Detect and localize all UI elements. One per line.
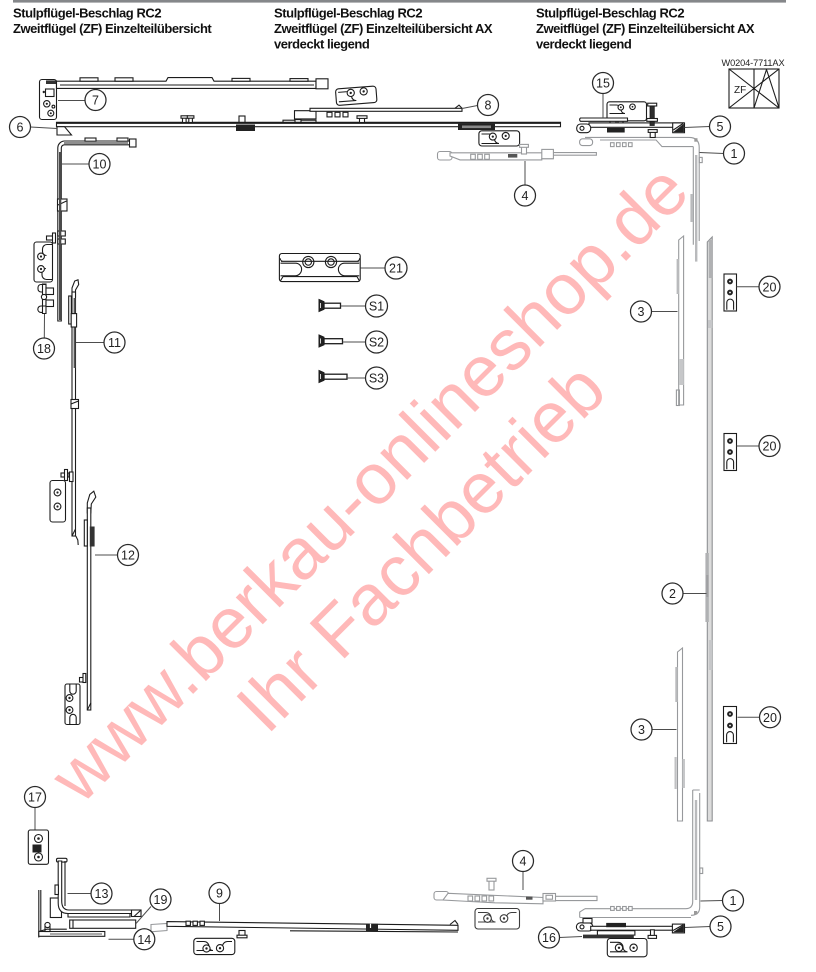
svg-text:Stulpflügel-Beschlag RC2: Stulpflügel-Beschlag RC2: [13, 6, 161, 21]
svg-text:Stulpflügel-Beschlag RC2: Stulpflügel-Beschlag RC2: [536, 6, 684, 21]
svg-text:20: 20: [763, 280, 777, 294]
svg-text:Zweitflügel (ZF) Einzelteilübe: Zweitflügel (ZF) Einzelteilübersicht: [13, 21, 212, 36]
svg-text:11: 11: [108, 336, 121, 350]
svg-text:12: 12: [121, 549, 135, 563]
svg-text:5: 5: [717, 120, 724, 134]
svg-text:20: 20: [763, 711, 777, 725]
svg-text:S2: S2: [369, 336, 384, 350]
svg-text:Zweitflügel (ZF) Einzelteilübe: Zweitflügel (ZF) Einzelteilübersicht AX: [274, 21, 493, 36]
svg-text:2: 2: [669, 587, 676, 601]
svg-text:20: 20: [763, 440, 777, 454]
svg-text:7: 7: [92, 94, 99, 108]
svg-text:Stulpflügel-Beschlag RC2: Stulpflügel-Beschlag RC2: [274, 6, 422, 21]
svg-text:21: 21: [389, 262, 403, 276]
svg-text:18: 18: [37, 342, 51, 356]
svg-text:3: 3: [638, 723, 645, 737]
svg-text:13: 13: [95, 887, 109, 901]
svg-text:S3: S3: [369, 372, 384, 386]
svg-text:19: 19: [154, 893, 168, 907]
svg-text:5: 5: [717, 920, 724, 934]
svg-text:1: 1: [730, 894, 737, 908]
svg-text:verdeckt liegend: verdeckt liegend: [274, 37, 370, 52]
svg-text:S1: S1: [369, 300, 384, 314]
svg-text:4: 4: [522, 189, 529, 203]
svg-text:W0204-7711AX: W0204-7711AX: [722, 58, 785, 68]
svg-text:6: 6: [17, 121, 24, 135]
svg-text:1: 1: [731, 147, 738, 161]
svg-text:verdeckt liegend: verdeckt liegend: [536, 37, 632, 52]
svg-text:15: 15: [596, 77, 610, 91]
svg-text:9: 9: [216, 887, 223, 901]
svg-text:ZF: ZF: [734, 85, 746, 96]
svg-text:3: 3: [638, 305, 645, 319]
svg-text:10: 10: [93, 158, 107, 172]
svg-text:Zweitflügel (ZF) Einzelteilübe: Zweitflügel (ZF) Einzelteilübersicht AX: [536, 21, 755, 36]
svg-text:8: 8: [485, 99, 492, 113]
svg-text:14: 14: [137, 933, 151, 947]
svg-text:4: 4: [520, 855, 527, 869]
svg-text:17: 17: [28, 791, 42, 805]
svg-text:16: 16: [542, 931, 556, 945]
